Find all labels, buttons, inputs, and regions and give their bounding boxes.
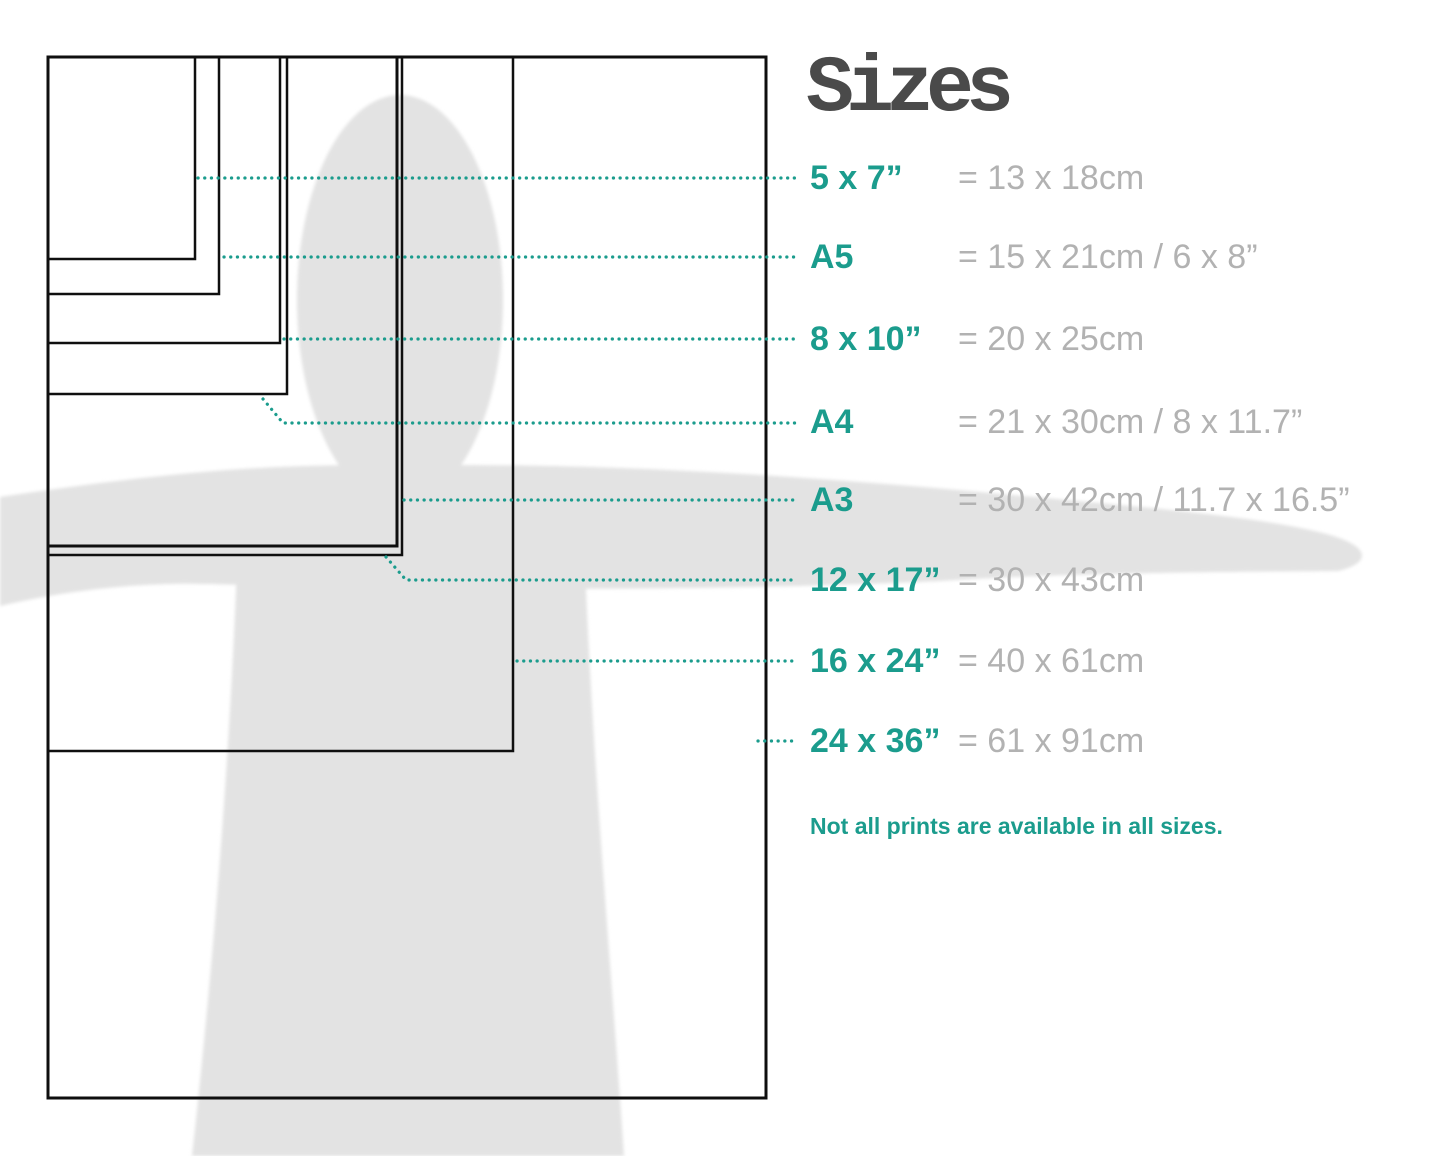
size-rect-5x7 [48,57,195,259]
size-metric: = 40 x 61cm [958,642,1144,681]
silhouette-torso [192,540,624,1156]
size-label: 16 x 24” [810,642,958,681]
size-rect-8x10 [48,57,280,343]
size-row-12x17: 12 x 17” = 30 x 43cm [810,558,1144,602]
size-label: 24 x 36” [810,722,958,761]
size-row-24x36: 24 x 36” = 61 x 91cm [810,719,1144,763]
size-label: 12 x 17” [810,561,958,600]
size-row-a3: A3 = 30 x 42cm / 11.7 x 16.5” [810,478,1350,522]
size-metric: = 61 x 91cm [958,722,1144,761]
size-metric: = 15 x 21cm / 6 x 8” [958,238,1258,277]
size-metric: = 30 x 43cm [958,561,1144,600]
size-row-a4: A4 = 21 x 30cm / 8 x 11.7” [810,400,1302,444]
size-label: A4 [810,403,958,442]
diagram-canvas [0,0,1445,1156]
page-title: Sizes [806,50,1006,130]
availability-note: Not all prints are available in all size… [810,813,1223,840]
size-metric: = 20 x 25cm [958,320,1144,359]
size-metric: = 13 x 18cm [958,159,1144,198]
size-chart: Sizes 5 x 7” = 13 x 18cm A5 = 15 x 21cm … [0,0,1445,1156]
silhouette-head [297,95,503,505]
size-metric: = 30 x 42cm / 11.7 x 16.5” [958,481,1350,520]
size-label: 8 x 10” [810,320,958,359]
size-label: 5 x 7” [810,159,958,198]
size-metric: = 21 x 30cm / 8 x 11.7” [958,403,1302,442]
size-row-a5: A5 = 15 x 21cm / 6 x 8” [810,235,1258,279]
size-label: A3 [810,481,958,520]
size-row-8x10: 8 x 10” = 20 x 25cm [810,317,1144,361]
size-label: A5 [810,238,958,277]
size-row-5x7: 5 x 7” = 13 x 18cm [810,156,1144,200]
size-row-16x24: 16 x 24” = 40 x 61cm [810,639,1144,683]
